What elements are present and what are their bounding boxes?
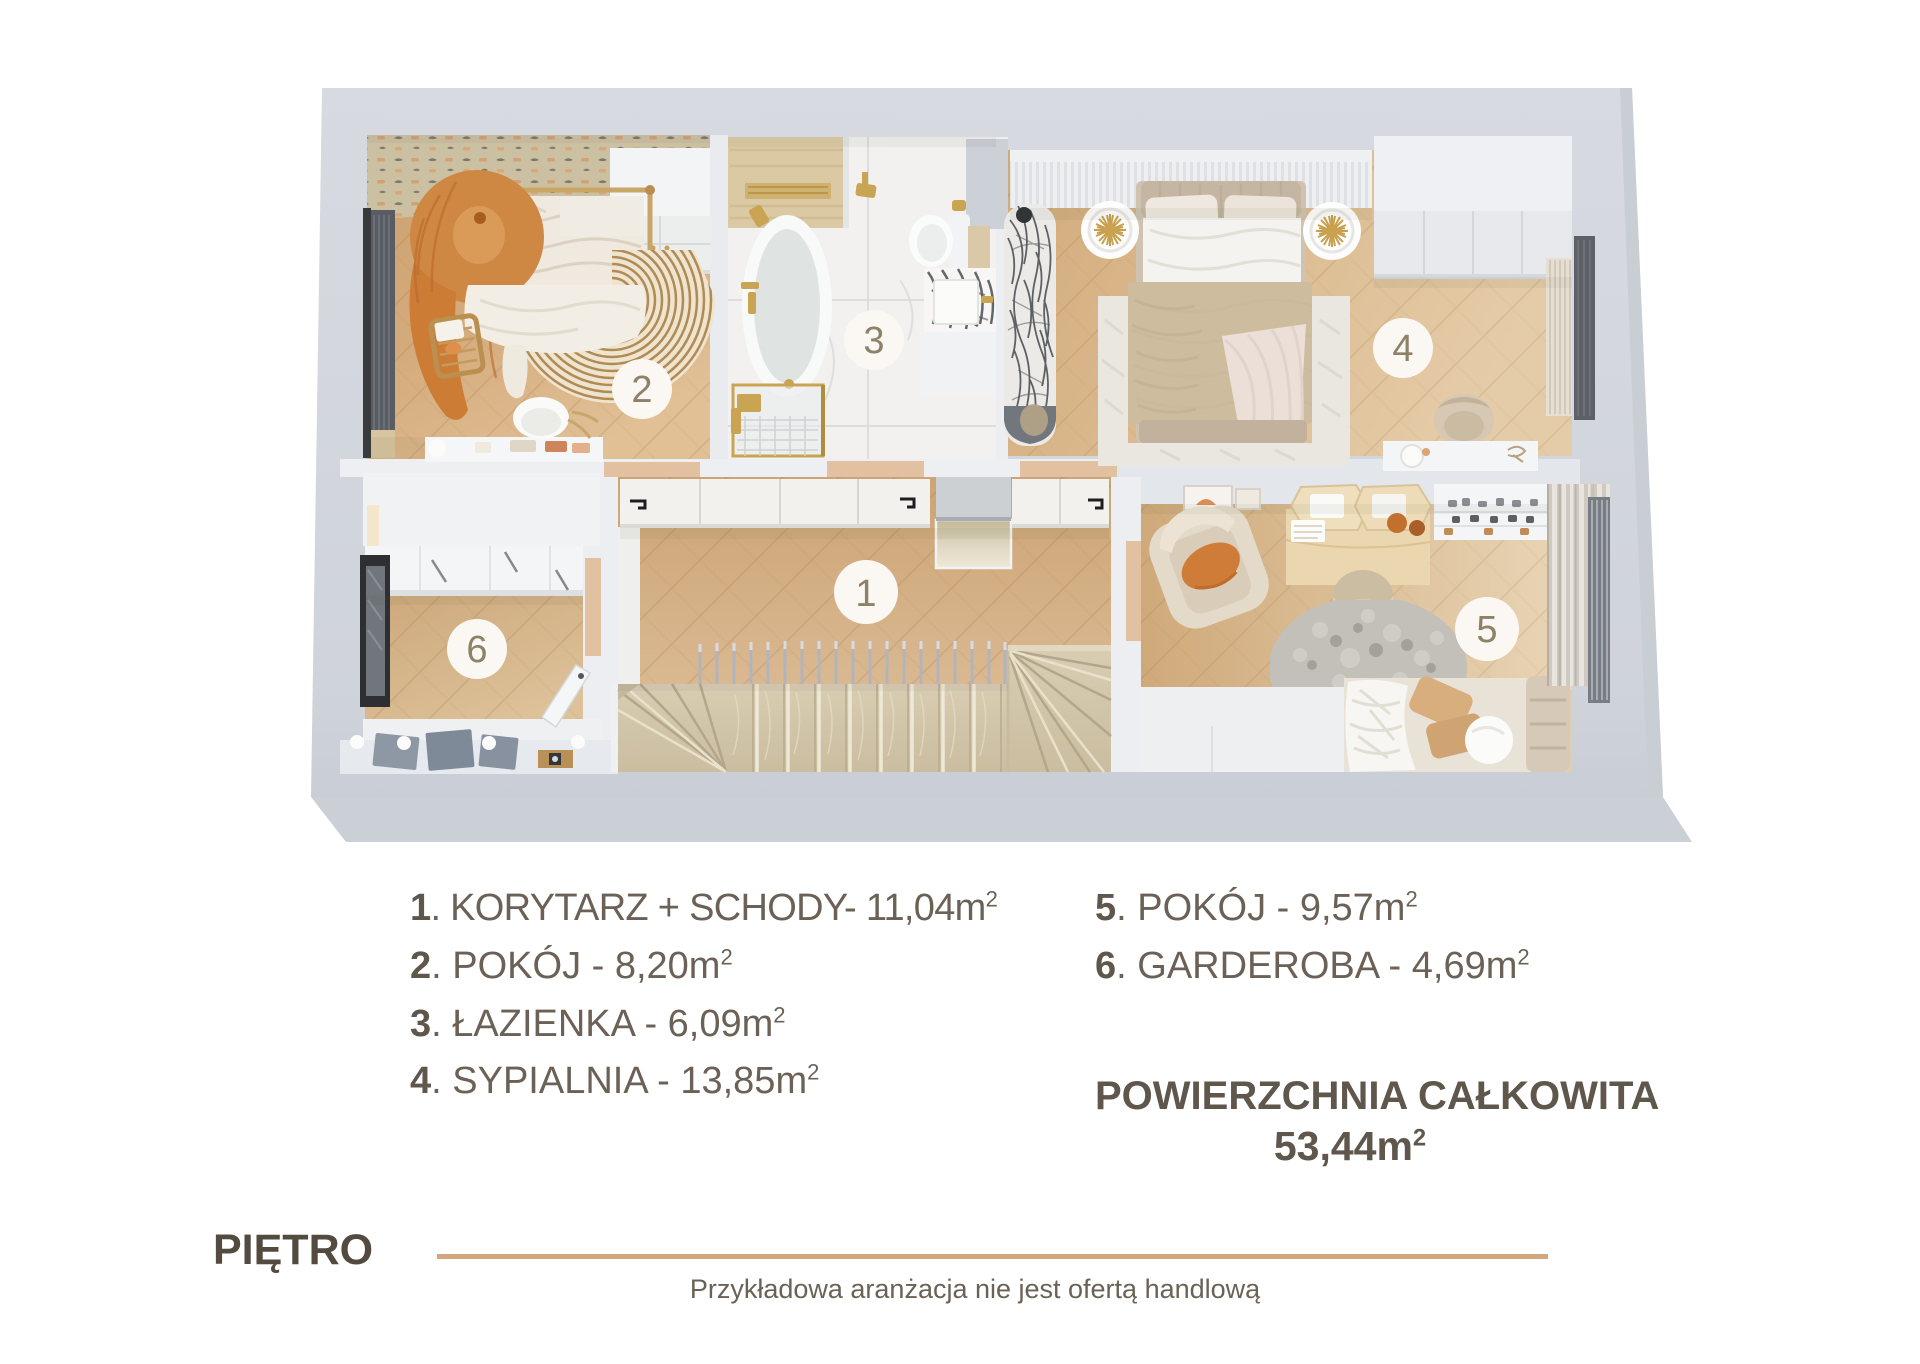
svg-text:5: 5	[1476, 609, 1497, 651]
svg-text:2: 2	[631, 369, 652, 411]
svg-text:6: 6	[466, 629, 487, 671]
svg-text:4: 4	[1392, 328, 1413, 370]
svg-text:1: 1	[855, 573, 876, 615]
svg-text:3: 3	[863, 320, 884, 362]
